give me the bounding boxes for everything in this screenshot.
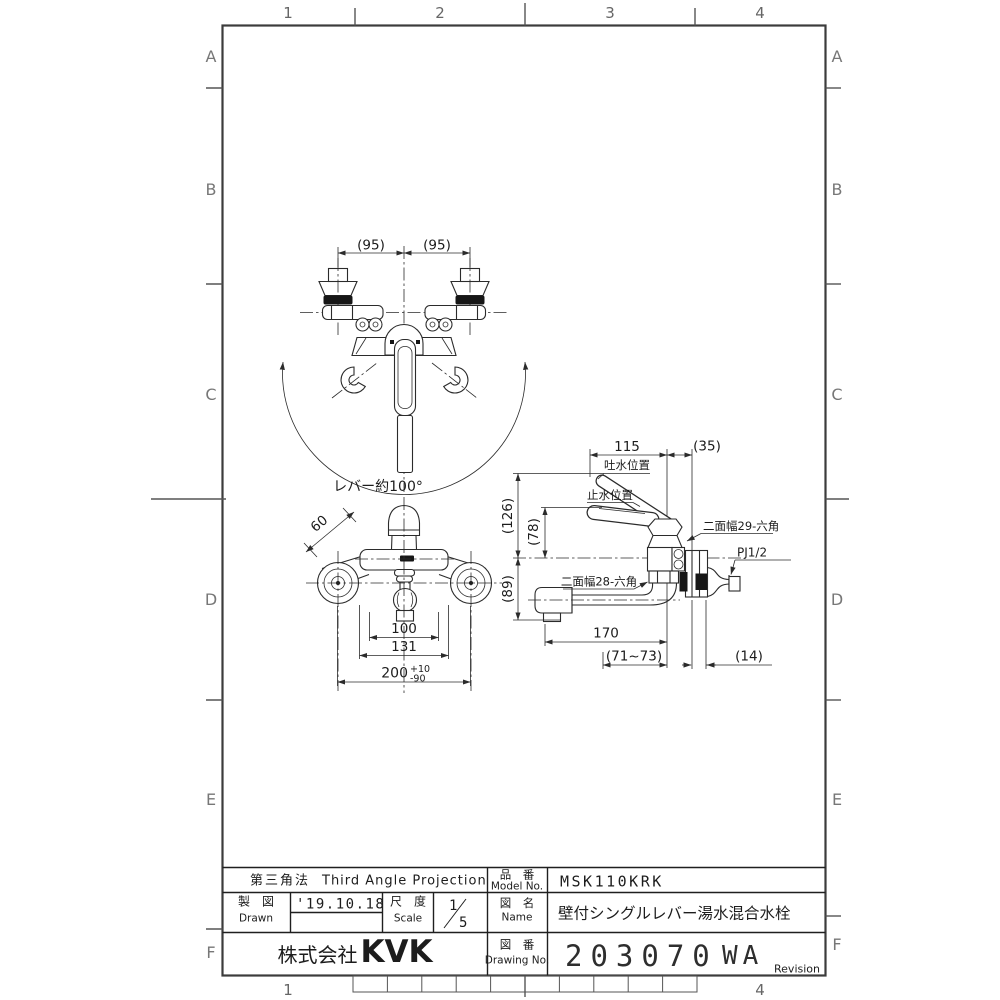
dim-pitch-right: (95): [423, 238, 451, 254]
projection-label-en: Third Angle Projection: [321, 874, 487, 889]
dim-width-mid: 131: [391, 639, 417, 655]
drawn-label-jp: 製 図: [238, 895, 274, 909]
dim-pitch: 200: [381, 666, 408, 682]
grid-col-4-top: 4: [755, 4, 765, 22]
drawing-number: 203070: [565, 939, 718, 973]
label-stop-position: 止水位置: [587, 488, 633, 502]
grid-row-f-left: F: [206, 943, 215, 962]
label-pj-thread: PJ1/2: [737, 546, 767, 560]
drawing-no-label-jp: 図 番: [500, 938, 535, 952]
grid-row-a-right: A: [832, 47, 843, 66]
drawing-sheet: 1 2 3 4 1 4 A B C D E F A B C D E F (95)…: [0, 0, 1000, 1000]
name-label-en: Name: [502, 912, 533, 924]
dim-height-stop: (78): [526, 518, 542, 546]
dim-flange-depth: (14): [735, 649, 763, 665]
side-view: 吐水位置 止水位置 二面幅29-六角 PJ1/2 二面幅28-六角 115 (3…: [500, 439, 791, 670]
title-block: 第三角法 Third Angle Projection 品 番 Model No…: [223, 868, 826, 976]
grid-row-c-left: C: [205, 385, 216, 404]
grid-row-f-right: F: [832, 935, 841, 954]
company-name: 株式会社KVK: [277, 934, 433, 970]
dim-leg-od: 60: [308, 512, 331, 535]
grid-row-c-right: C: [831, 385, 842, 404]
grid-row-b-left: B: [206, 180, 217, 199]
model-number: MSK110KRK: [560, 873, 664, 891]
grid-row-e-left: E: [206, 790, 216, 809]
grid-col-2-top: 2: [435, 4, 445, 22]
projection-label-jp: 第三角法: [250, 874, 310, 889]
company-logo: KVK: [360, 934, 433, 970]
drawn-date: '19.10.18: [296, 897, 385, 913]
dim-lever-angle: レバー約100°: [333, 479, 423, 495]
drawing-canvas: 1 2 3 4 1 4 A B C D E F A B C D E F (95)…: [0, 0, 1000, 1000]
grid-col-1-bottom: 1: [283, 981, 293, 999]
dim-pitch-tol-minus: -90: [410, 674, 426, 685]
dim-height-lever: (126): [500, 498, 516, 534]
grid-col-1-top: 1: [283, 4, 293, 22]
label-discharge-position: 吐水位置: [604, 458, 650, 472]
dim-width-inner: 100: [391, 621, 417, 637]
dim-reach-top: 115: [614, 439, 640, 455]
dim-pitch-left: (95): [357, 238, 385, 254]
revision-code: WA: [722, 941, 763, 971]
grid-col-3-top: 3: [605, 4, 615, 22]
dim-wall-clearance: (71~73): [606, 649, 662, 665]
model-label-jp: 品 番: [500, 868, 535, 882]
scale-numerator: 1: [449, 898, 457, 914]
grid-row-a-left: A: [206, 47, 217, 66]
grid-row-d-left: D: [205, 590, 217, 609]
grid-col-4-bottom: 4: [755, 981, 765, 999]
grid-row-e-right: E: [832, 790, 842, 809]
dim-drop-spout: (89): [500, 575, 516, 603]
front-view: 60 100 131 200 +10 -90: [304, 497, 502, 693]
revision-label: Revision: [774, 963, 820, 976]
label-hex28: 二面幅28-六角: [561, 575, 637, 589]
scale-label-jp: 尺 度: [390, 894, 426, 909]
dim-offset-wall: (35): [693, 439, 721, 455]
dim-spout-length: 170: [593, 626, 619, 642]
top-view: (95) (95): [282, 238, 525, 496]
name-label-jp: 図 名: [500, 896, 535, 910]
model-label-en: Model No.: [491, 881, 543, 893]
drawn-label-en: Drawn: [239, 913, 273, 925]
label-hex29: 二面幅29-六角: [703, 519, 779, 533]
company-prefix: 株式会社: [277, 943, 357, 967]
grid-row-d-right: D: [831, 590, 843, 609]
product-name: 壁付シングルレバー湯水混合水栓: [558, 905, 791, 923]
drawing-no-label-en: Drawing No.: [485, 955, 549, 967]
scale-denominator: 5: [459, 915, 467, 931]
grid-row-b-right: B: [832, 180, 843, 199]
scale-label-en: Scale: [394, 913, 422, 925]
